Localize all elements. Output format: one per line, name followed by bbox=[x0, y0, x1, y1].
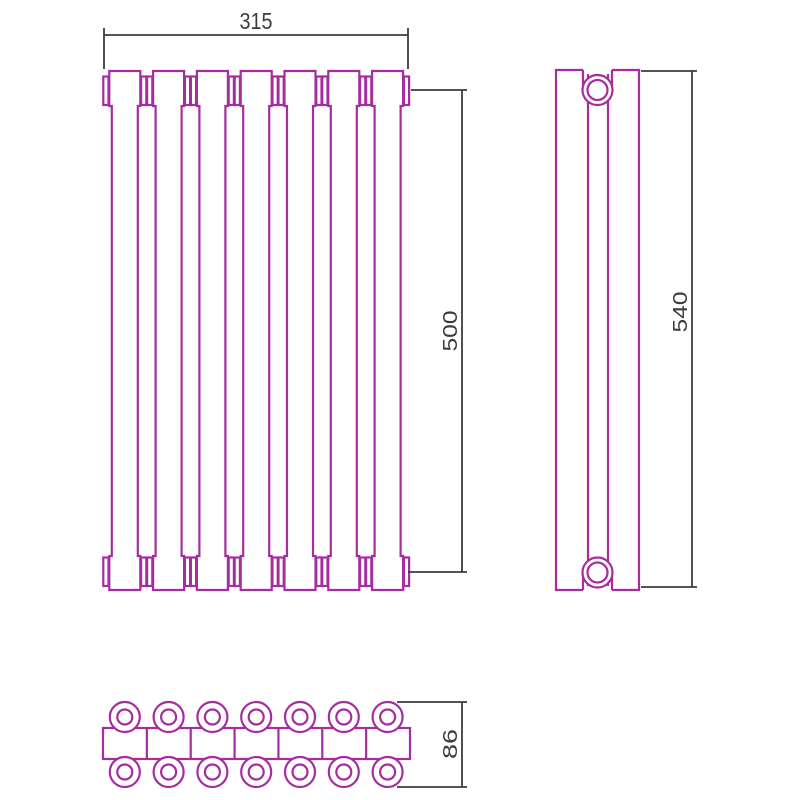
front-section-ear-tab bbox=[185, 77, 190, 106]
front-section-ear-tab bbox=[322, 558, 327, 587]
top-view-tube-inner-icon bbox=[117, 710, 132, 725]
front-section-ear-tab bbox=[191, 77, 196, 106]
front-section-ear-tab bbox=[316, 558, 321, 587]
dimension-width: 315 bbox=[104, 8, 408, 69]
side-top-bushing-inner-icon bbox=[588, 80, 608, 100]
dimension-depth-label: 86 bbox=[440, 729, 462, 759]
front-section-ear-tab bbox=[404, 77, 409, 106]
top-view-tube-inner-icon bbox=[117, 765, 132, 780]
dimension-depth: 86 bbox=[397, 702, 467, 787]
dimension-side-height: 540 bbox=[641, 71, 697, 587]
front-view-radiator bbox=[103, 71, 409, 590]
top-view-tube-circles bbox=[110, 702, 403, 787]
front-section-ear-tab bbox=[229, 77, 234, 106]
front-section-ear-tab bbox=[235, 77, 240, 106]
front-section-body bbox=[285, 71, 316, 590]
front-section-ear-tab bbox=[147, 558, 152, 587]
front-section-ear-tab bbox=[185, 558, 190, 587]
front-section-ear-tab bbox=[141, 558, 146, 587]
front-section-body bbox=[241, 71, 272, 590]
dimension-height: 500 bbox=[408, 90, 467, 572]
drawing-page: 315 500 540 86 bbox=[0, 0, 800, 800]
front-section-body bbox=[372, 71, 403, 590]
front-section-body bbox=[197, 71, 228, 590]
front-section-body bbox=[109, 71, 140, 590]
top-view-radiator bbox=[103, 702, 410, 787]
side-view-radiator bbox=[556, 70, 639, 590]
front-section-ear-tab bbox=[141, 77, 146, 106]
top-view-tube-inner-icon bbox=[293, 765, 308, 780]
top-view-tube-inner-icon bbox=[249, 710, 264, 725]
top-view-tube-inner-icon bbox=[336, 710, 351, 725]
front-section-ear-tab bbox=[366, 77, 371, 106]
front-section-ear-tab bbox=[103, 77, 108, 106]
top-view-tube-inner-icon bbox=[205, 765, 220, 780]
front-section-body bbox=[328, 71, 359, 590]
front-section-ear-tab bbox=[273, 77, 278, 106]
front-section-body bbox=[153, 71, 184, 590]
dimension-height-label: 500 bbox=[440, 311, 462, 352]
front-section-ear-tab bbox=[191, 558, 196, 587]
dimension-width-label: 315 bbox=[240, 8, 273, 34]
dimension-side-height-label: 540 bbox=[670, 292, 692, 333]
top-view-tube-inner-icon bbox=[380, 710, 395, 725]
top-view-tube-inner-icon bbox=[205, 710, 220, 725]
top-view-tube-inner-icon bbox=[161, 710, 176, 725]
side-bottom-bushing-inner-icon bbox=[588, 563, 608, 583]
front-section-ear-tab bbox=[279, 77, 284, 106]
front-section-ear-tab bbox=[279, 558, 284, 587]
top-view-tube-inner-icon bbox=[249, 765, 264, 780]
front-section-ear-tab bbox=[147, 77, 152, 106]
radiator-technical-drawing: 315 500 540 86 bbox=[0, 0, 800, 800]
front-section-ear-tab bbox=[229, 558, 234, 587]
front-section-ear-tab bbox=[235, 558, 240, 587]
top-view-tube-inner-icon bbox=[380, 765, 395, 780]
front-section-ear-tab bbox=[322, 77, 327, 106]
front-section-ear-tab bbox=[360, 558, 365, 587]
front-section-ear-tab bbox=[366, 558, 371, 587]
front-section-ear-tab bbox=[273, 558, 278, 587]
side-body-right bbox=[612, 70, 639, 590]
top-view-tube-inner-icon bbox=[161, 765, 176, 780]
side-body-left bbox=[556, 70, 583, 590]
front-section-ear-tab bbox=[103, 558, 108, 587]
front-section-ear-tab bbox=[316, 77, 321, 106]
top-view-tube-inner-icon bbox=[336, 765, 351, 780]
top-view-tube-inner-icon bbox=[293, 710, 308, 725]
front-section-ear-tab bbox=[360, 77, 365, 106]
